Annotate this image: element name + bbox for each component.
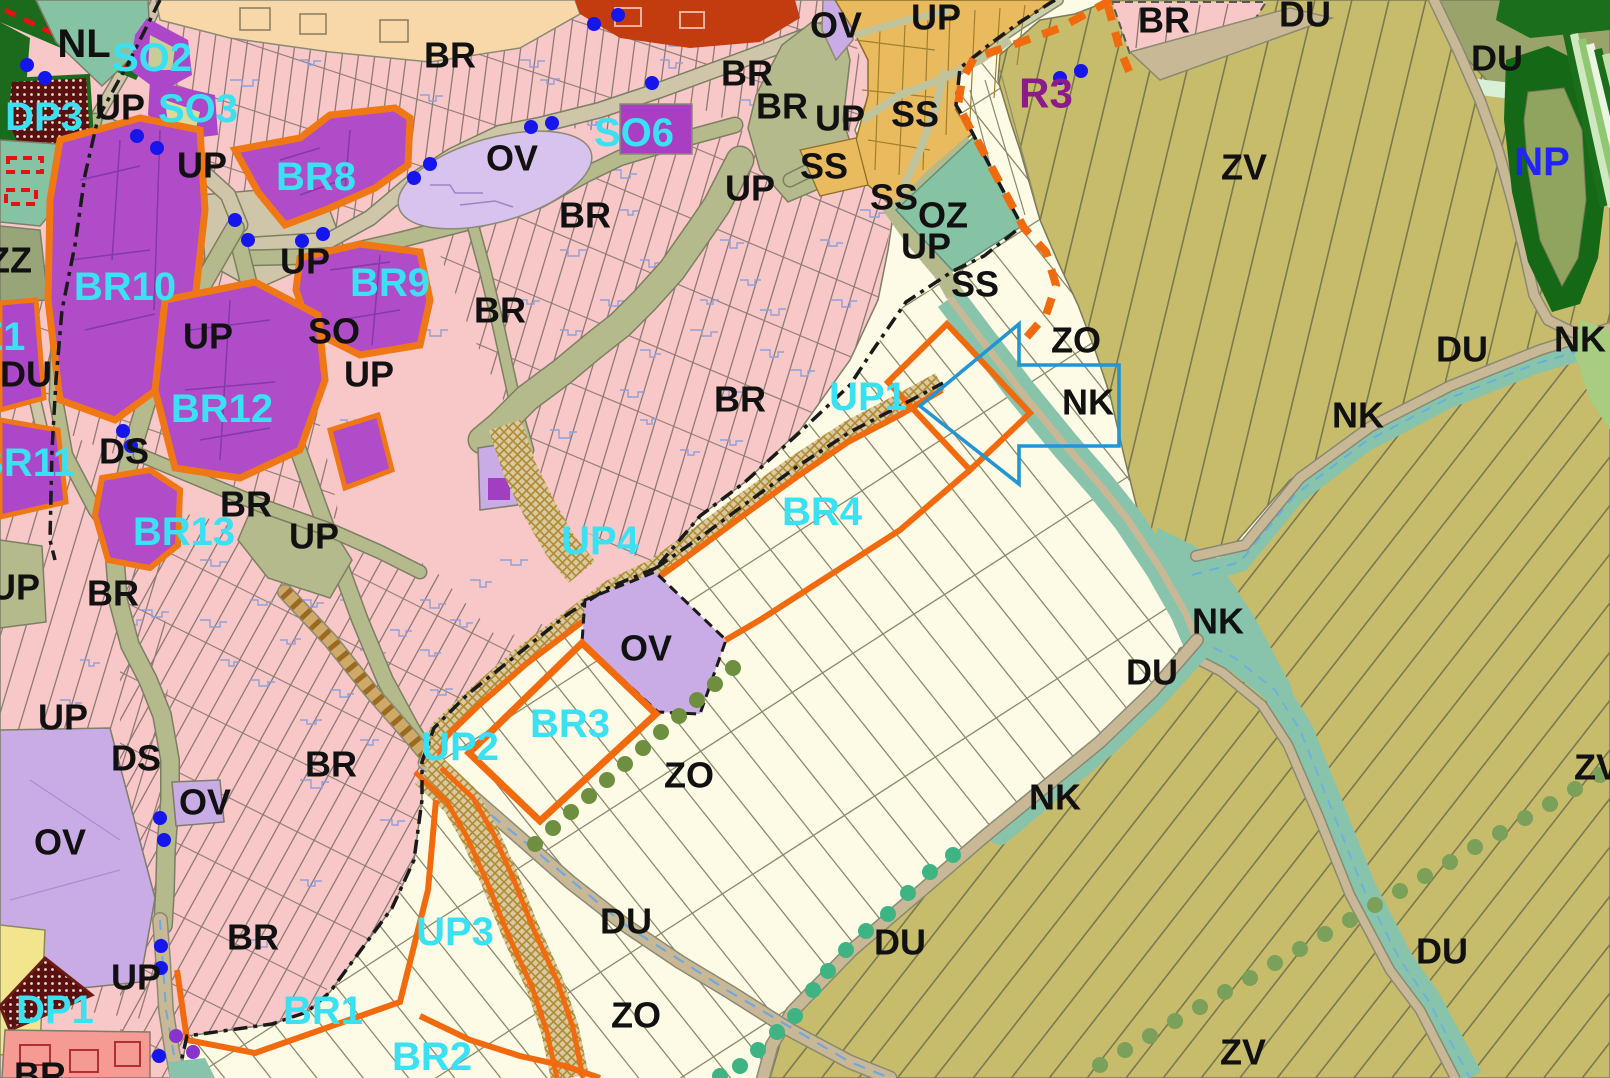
- svg-text:DS: DS: [111, 738, 161, 779]
- svg-text:BR: BR: [305, 744, 357, 785]
- svg-text:DU: DU: [0, 354, 52, 395]
- svg-text:UP: UP: [289, 516, 339, 557]
- svg-text:ZV: ZV: [1220, 1032, 1266, 1073]
- svg-text:DP1: DP1: [16, 988, 94, 1032]
- svg-text:DU: DU: [1436, 329, 1488, 370]
- svg-text:BR10: BR10: [74, 265, 176, 309]
- svg-text:NK: NK: [1332, 395, 1384, 436]
- svg-text:BR: BR: [1138, 0, 1190, 41]
- svg-text:BR4: BR4: [782, 490, 863, 534]
- svg-text:UP: UP: [725, 168, 775, 209]
- svg-text:BR: BR: [756, 86, 808, 127]
- svg-text:BR2: BR2: [392, 1035, 472, 1078]
- svg-text:ZZ: ZZ: [0, 240, 32, 281]
- svg-text:UP: UP: [280, 241, 330, 282]
- svg-text:SO6: SO6: [594, 111, 674, 155]
- svg-text:UP: UP: [344, 354, 394, 395]
- svg-text:UP: UP: [38, 697, 88, 738]
- svg-text:NK: NK: [1062, 382, 1114, 423]
- svg-text:BR: BR: [714, 379, 766, 420]
- svg-text:UP: UP: [183, 316, 233, 357]
- svg-text:BR: BR: [424, 35, 476, 76]
- svg-text:BR1: BR1: [283, 989, 363, 1033]
- svg-text:UP: UP: [177, 145, 227, 186]
- svg-text:BR9: BR9: [350, 261, 430, 305]
- svg-text:DU: DU: [1471, 38, 1523, 79]
- svg-text:NK: NK: [1554, 319, 1606, 360]
- svg-text:OV: OV: [810, 5, 862, 46]
- svg-text:UP: UP: [111, 957, 161, 998]
- svg-text:NK: NK: [1029, 777, 1081, 818]
- svg-text:BR: BR: [559, 195, 611, 236]
- svg-text:UP1: UP1: [829, 375, 907, 419]
- svg-text:BR3: BR3: [530, 702, 610, 746]
- svg-text:UP: UP: [901, 226, 951, 267]
- svg-text:DU: DU: [874, 922, 926, 963]
- svg-text:BR11: BR11: [0, 441, 75, 485]
- svg-text:DU: DU: [1279, 0, 1331, 35]
- svg-text:UP: UP: [95, 87, 145, 128]
- svg-text:SS: SS: [891, 94, 939, 135]
- svg-text:SS: SS: [800, 146, 848, 187]
- svg-text:UP: UP: [911, 0, 961, 38]
- svg-text:OV: OV: [34, 822, 86, 863]
- svg-text:ZO: ZO: [611, 995, 661, 1036]
- svg-text:DP3: DP3: [5, 95, 83, 139]
- svg-text:DU: DU: [1416, 931, 1468, 972]
- svg-text:DS: DS: [99, 431, 149, 472]
- svg-text:NP: NP: [1514, 140, 1570, 184]
- svg-text:DU: DU: [1126, 652, 1178, 693]
- svg-text:ZV: ZV: [1574, 747, 1610, 788]
- svg-text:BR: BR: [474, 290, 526, 331]
- svg-text:SO2: SO2: [112, 36, 192, 80]
- svg-text:OV: OV: [486, 138, 538, 179]
- svg-text:DU: DU: [600, 901, 652, 942]
- svg-text:UP: UP: [815, 98, 865, 139]
- svg-text:ZV: ZV: [1221, 147, 1267, 188]
- svg-text:SS: SS: [870, 177, 918, 218]
- svg-text:SS: SS: [951, 264, 999, 305]
- svg-text:UP: UP: [0, 567, 40, 608]
- svg-text:UP4: UP4: [561, 519, 640, 563]
- svg-text:SO3: SO3: [158, 87, 238, 131]
- svg-text:OV: OV: [179, 782, 231, 823]
- svg-text:BR13: BR13: [133, 510, 235, 554]
- svg-text:OV: OV: [620, 628, 672, 669]
- svg-text:UP2: UP2: [421, 725, 499, 769]
- svg-text:ZO: ZO: [664, 755, 714, 796]
- svg-text:BR12: BR12: [171, 387, 273, 431]
- svg-text:BR: BR: [227, 917, 279, 958]
- svg-text:BR: BR: [14, 1055, 66, 1078]
- svg-text:BR: BR: [87, 573, 139, 614]
- svg-text:R3: R3: [1019, 70, 1073, 117]
- svg-text:NL: NL: [57, 22, 110, 66]
- svg-text:NK: NK: [1192, 601, 1244, 642]
- svg-text:BR8: BR8: [276, 155, 356, 199]
- svg-text:Z1: Z1: [0, 315, 25, 359]
- svg-text:UP3: UP3: [416, 910, 494, 954]
- svg-text:ZO: ZO: [1051, 320, 1101, 361]
- svg-text:SO: SO: [308, 311, 360, 352]
